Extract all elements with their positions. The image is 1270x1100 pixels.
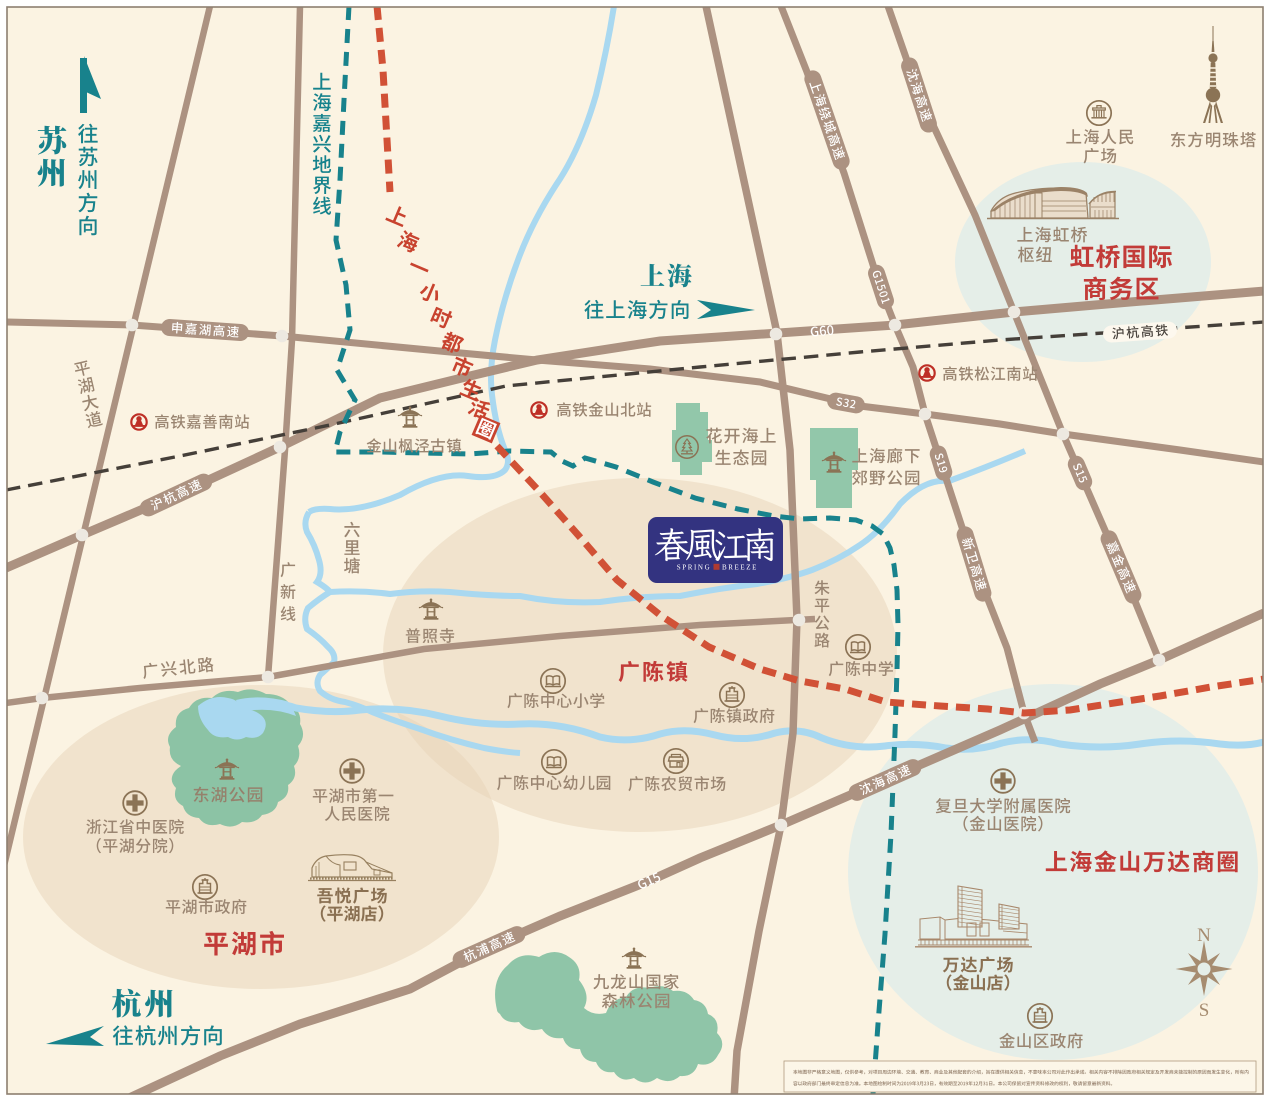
svg-text:SPRING: SPRING — [677, 564, 712, 572]
svg-text:S: S — [1199, 1000, 1210, 1021]
svg-text:N: N — [1197, 925, 1211, 946]
svg-text:BREEZE: BREEZE — [722, 564, 758, 572]
